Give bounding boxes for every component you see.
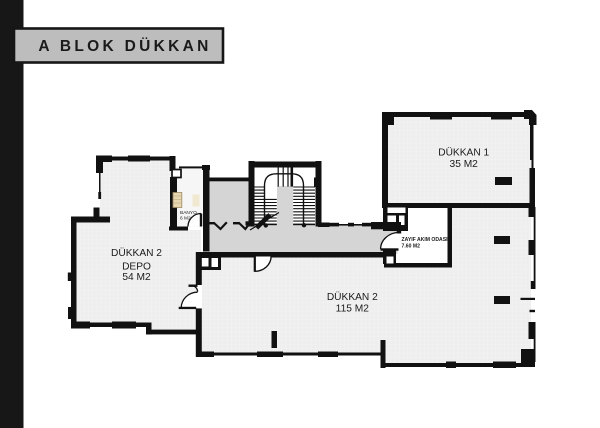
svg-text:6 M2: 6 M2 [180,216,191,222]
svg-text:35 M2: 35 M2 [450,159,479,170]
svg-text:54 M2: 54 M2 [122,272,151,283]
svg-text:A BLOK DÜKKAN: A BLOK DÜKKAN [38,38,211,55]
svg-text:BANYO: BANYO [180,210,197,216]
svg-text:115 M2: 115 M2 [336,304,370,315]
svg-text:ZAYIF AKIM ODASI: ZAYIF AKIM ODASI [402,237,449,243]
svg-text:7.60 M2: 7.60 M2 [402,244,421,250]
svg-text:DÜKKAN 2: DÜKKAN 2 [327,291,378,303]
svg-text:DEPO: DEPO [122,261,151,272]
svg-text:DÜKKAN 2: DÜKKAN 2 [111,247,162,259]
svg-text:DÜKKAN 1: DÜKKAN 1 [438,146,489,158]
